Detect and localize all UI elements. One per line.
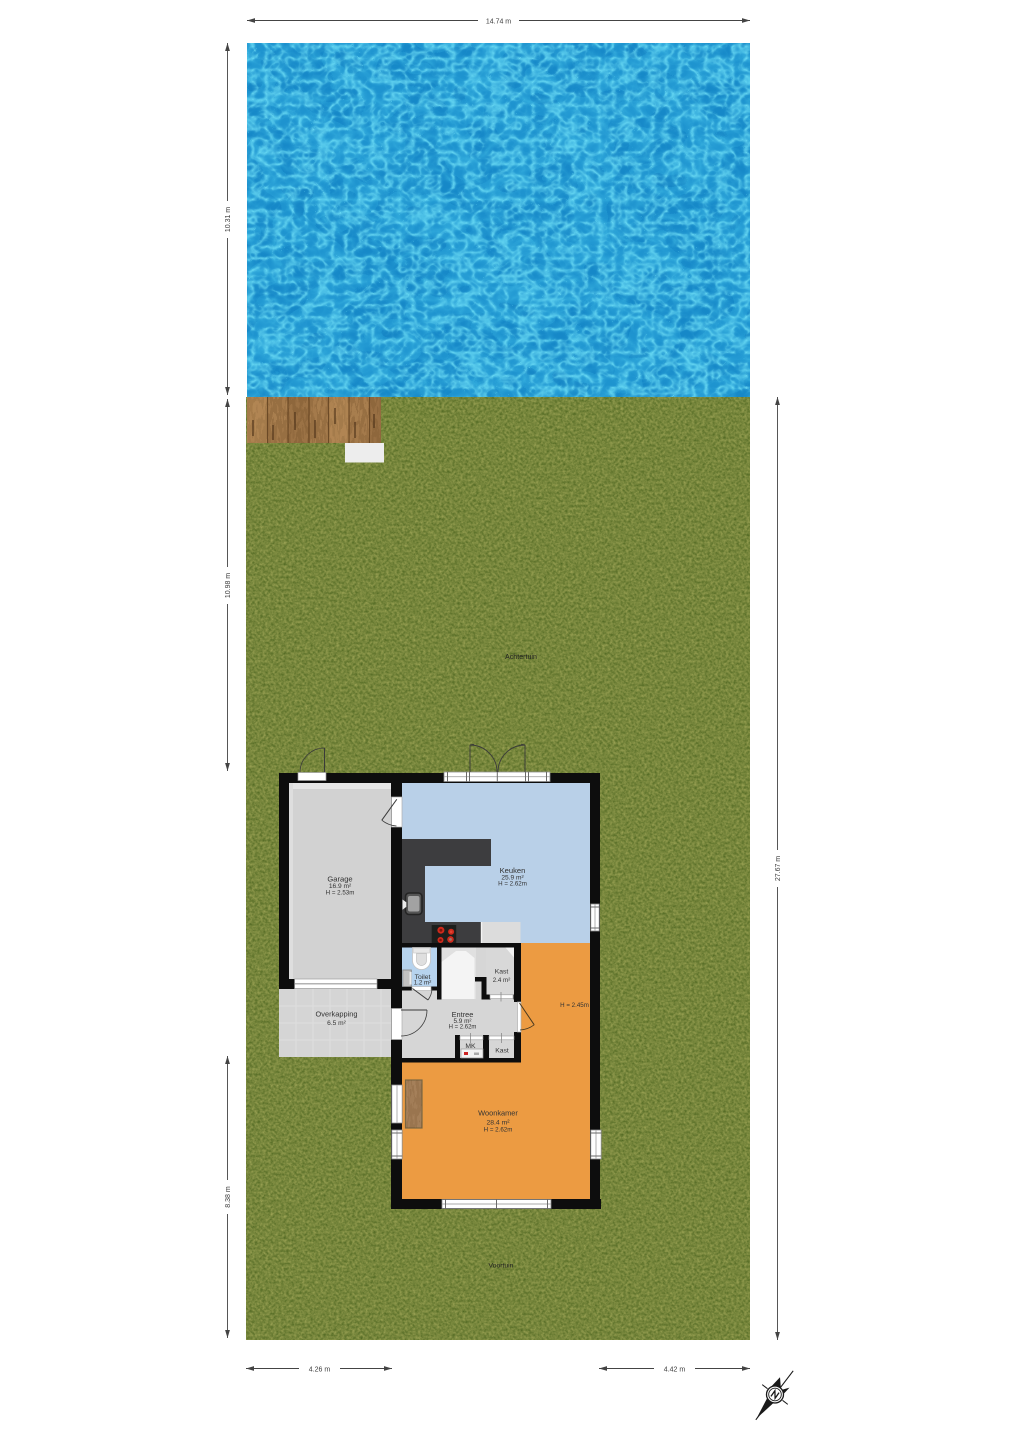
svg-text:8.38 m: 8.38 m (225, 1186, 232, 1208)
svg-text:14.74 m: 14.74 m (486, 19, 511, 26)
svg-text:4.26 m: 4.26 m (309, 1367, 331, 1374)
svg-text:4.42 m: 4.42 m (664, 1367, 686, 1374)
svg-text:28.4 m²: 28.4 m² (486, 1119, 510, 1126)
svg-text:2.4 m²: 2.4 m² (493, 977, 511, 984)
svg-text:Achtertuin: Achtertuin (505, 653, 537, 661)
svg-text:1.2 m²: 1.2 m² (414, 980, 432, 987)
svg-text:Overkapping: Overkapping (316, 1010, 358, 1019)
svg-text:MK: MK (465, 1043, 476, 1050)
svg-text:Kast: Kast (495, 1048, 509, 1055)
svg-text:10.98 m: 10.98 m (225, 573, 232, 598)
svg-text:H = 2.45m: H = 2.45m (560, 1002, 589, 1009)
svg-text:10.31 m: 10.31 m (225, 207, 232, 232)
svg-text:H = 2.62m: H = 2.62m (449, 1025, 477, 1031)
svg-text:Kast: Kast (495, 969, 509, 976)
svg-text:H = 2.53m: H = 2.53m (326, 889, 355, 896)
svg-text:Voortuin: Voortuin (489, 1263, 514, 1270)
svg-text:H = 2.62m: H = 2.62m (498, 880, 527, 887)
svg-text:Woonkamer: Woonkamer (478, 1109, 518, 1118)
svg-text:6.5 m²: 6.5 m² (327, 1020, 346, 1027)
svg-text:27.67 m: 27.67 m (775, 856, 782, 881)
svg-text:H = 2.62m: H = 2.62m (484, 1126, 513, 1133)
